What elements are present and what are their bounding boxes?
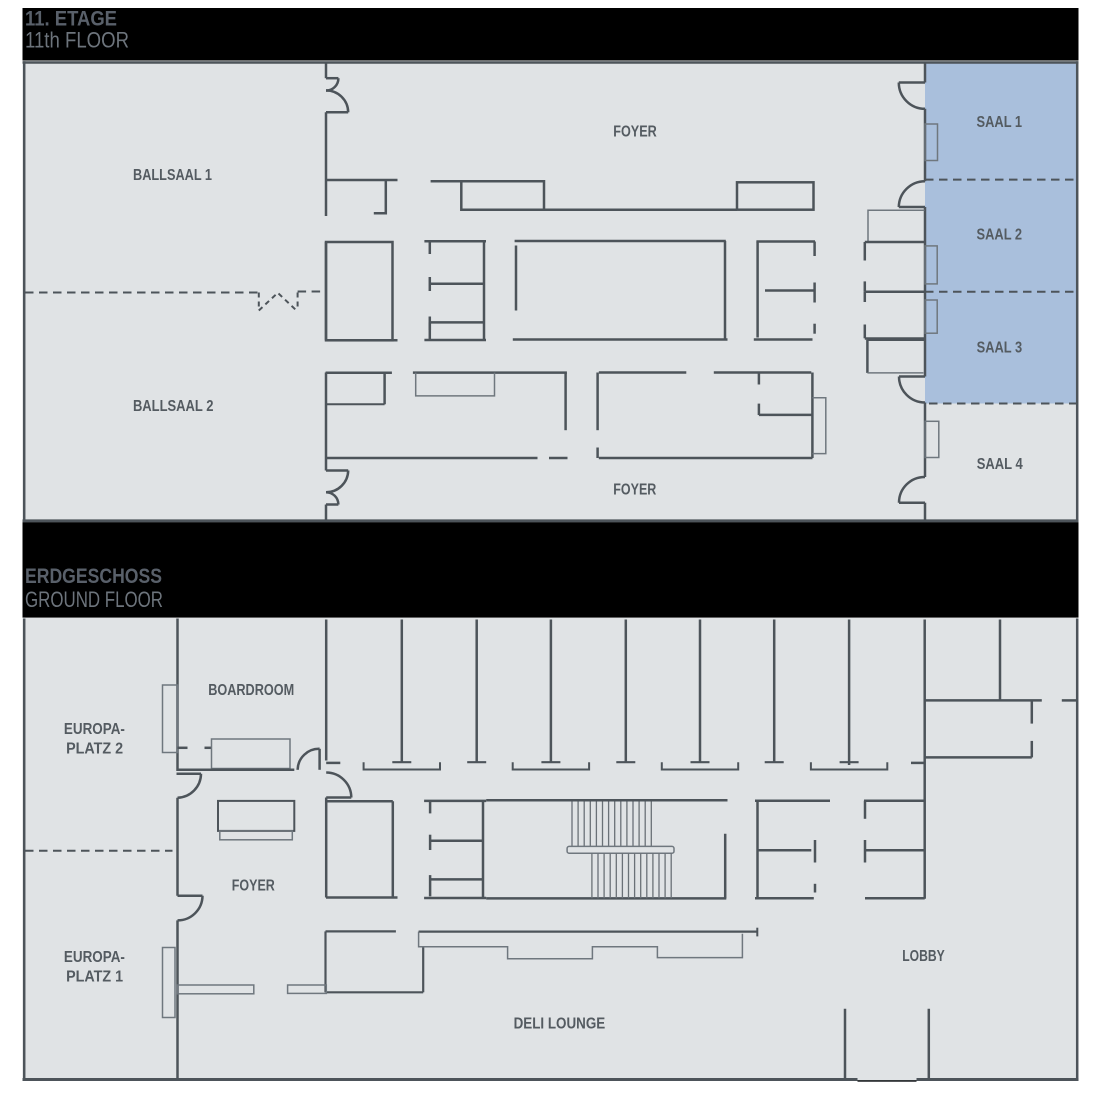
svg-text:GROUND FLOOR: GROUND FLOOR xyxy=(25,587,163,612)
svg-text:BALLSAAL 1: BALLSAAL 1 xyxy=(133,167,212,184)
svg-text:SAAL 1: SAAL 1 xyxy=(977,114,1023,131)
svg-text:11th FLOOR: 11th FLOOR xyxy=(25,28,129,53)
svg-text:SAAL 2: SAAL 2 xyxy=(977,226,1023,243)
svg-text:BOARDROOM: BOARDROOM xyxy=(208,682,294,699)
svg-text:FOYER: FOYER xyxy=(613,482,656,499)
svg-text:FOYER: FOYER xyxy=(613,123,657,140)
svg-text:PLATZ 1: PLATZ 1 xyxy=(66,968,123,985)
svg-text:BALLSAAL 2: BALLSAAL 2 xyxy=(133,398,214,415)
svg-text:SAAL 3: SAAL 3 xyxy=(977,340,1023,357)
svg-text:SAAL 4: SAAL 4 xyxy=(977,456,1023,473)
svg-text:EUROPA-: EUROPA- xyxy=(64,721,125,738)
svg-text:LOBBY: LOBBY xyxy=(902,948,945,965)
svg-text:PLATZ 2: PLATZ 2 xyxy=(66,740,123,757)
svg-text:FOYER: FOYER xyxy=(232,878,275,895)
svg-text:ERDGESCHOSS: ERDGESCHOSS xyxy=(25,565,162,588)
svg-text:DELI LOUNGE: DELI LOUNGE xyxy=(514,1015,606,1032)
svg-text:EUROPA-: EUROPA- xyxy=(64,949,125,966)
